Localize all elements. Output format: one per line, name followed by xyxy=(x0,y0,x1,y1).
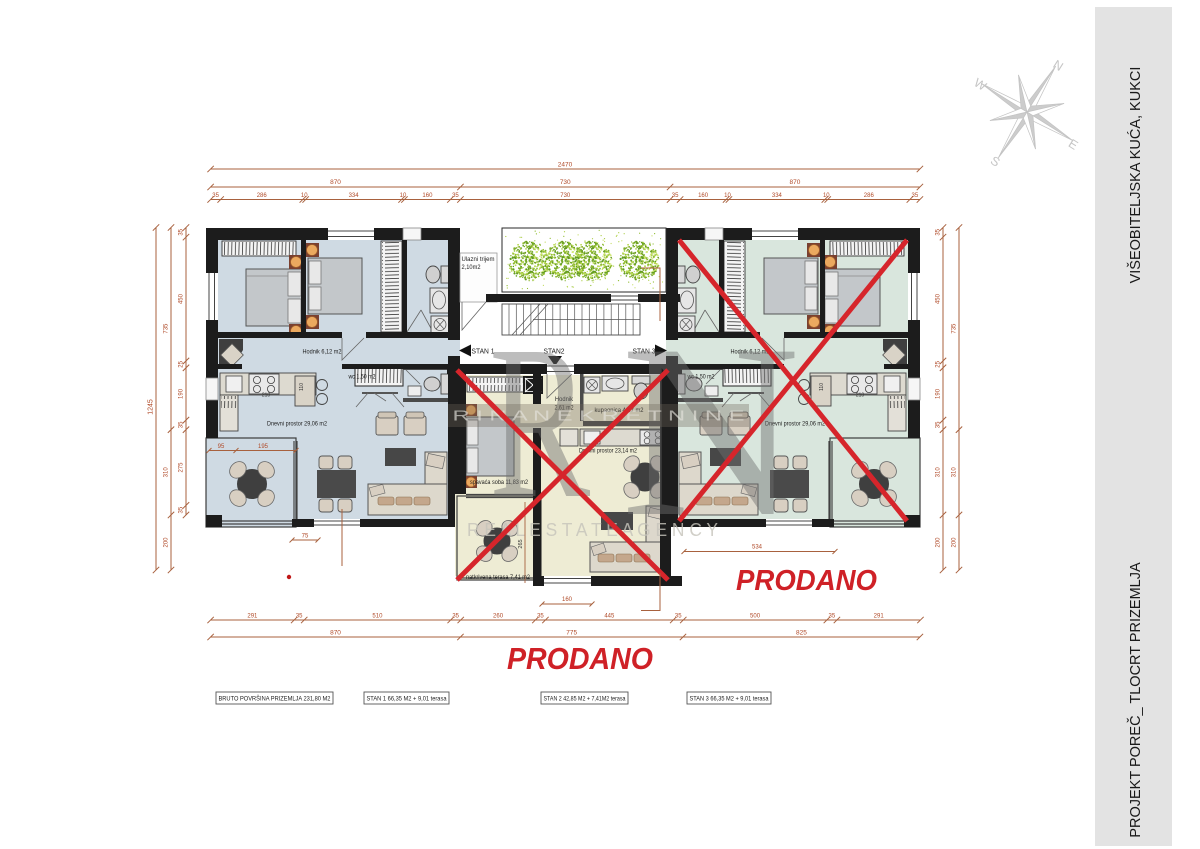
svg-text:Ulazni trijem: Ulazni trijem xyxy=(462,257,495,263)
svg-text:825: 825 xyxy=(796,630,807,637)
svg-text:450: 450 xyxy=(179,293,185,304)
svg-text:35: 35 xyxy=(452,614,459,620)
svg-text:190: 190 xyxy=(936,388,942,399)
svg-text:334: 334 xyxy=(772,193,783,199)
svg-text:110: 110 xyxy=(299,383,305,391)
svg-text:35: 35 xyxy=(179,421,185,428)
svg-text:35: 35 xyxy=(675,614,682,620)
svg-text:2470: 2470 xyxy=(558,162,573,169)
svg-text:870: 870 xyxy=(330,630,341,637)
svg-text:210: 210 xyxy=(856,393,865,399)
svg-text:291: 291 xyxy=(247,614,258,620)
svg-text:310: 310 xyxy=(936,467,942,478)
svg-text:730: 730 xyxy=(560,193,571,199)
svg-text:35: 35 xyxy=(936,421,942,428)
svg-text:310: 310 xyxy=(164,467,170,478)
svg-text:STAN 2 42,85 M2 + 7,41M2 teras: STAN 2 42,85 M2 + 7,41M2 terasa xyxy=(544,696,626,703)
svg-text:110: 110 xyxy=(819,383,825,391)
svg-text:160: 160 xyxy=(562,597,573,603)
svg-text:730: 730 xyxy=(560,179,571,186)
svg-text:310: 310 xyxy=(952,467,958,478)
svg-text:35: 35 xyxy=(452,193,459,199)
svg-text:25: 25 xyxy=(936,360,942,367)
svg-text:PRODANO: PRODANO xyxy=(736,565,877,597)
svg-text:35: 35 xyxy=(672,193,679,199)
svg-text:210: 210 xyxy=(262,393,271,399)
svg-text:160: 160 xyxy=(698,193,709,199)
svg-text:35: 35 xyxy=(179,228,185,235)
svg-text:190: 190 xyxy=(179,388,185,399)
svg-text:VIŠEOBITELJSKA KUĆA, KUKCI: VIŠEOBITELJSKA KUĆA, KUKCI xyxy=(1127,67,1144,284)
svg-text:Dnevni prostor 29,06 m2: Dnevni prostor 29,06 m2 xyxy=(267,422,328,428)
svg-text:775: 775 xyxy=(566,630,577,637)
svg-text:735: 735 xyxy=(952,323,958,334)
svg-text:wc 1,50 m2: wc 1,50 m2 xyxy=(348,375,376,381)
svg-text:STAN 3 66,35 M2 + 9,01 terasa: STAN 3 66,35 M2 + 9,01 terasa xyxy=(690,696,769,703)
svg-text:95: 95 xyxy=(218,444,225,450)
svg-text:200: 200 xyxy=(936,537,942,548)
svg-text:25: 25 xyxy=(179,360,185,367)
svg-text:STAN 1 66,35 M2 + 9,01 terasa: STAN 1 66,35 M2 + 9,01 terasa xyxy=(367,696,447,703)
svg-text:35: 35 xyxy=(936,228,942,235)
svg-text:BRUTO POVRŠINA PRIZEMLJA 231,: BRUTO POVRŠINA PRIZEMLJA 231,80 M2 xyxy=(219,694,331,703)
svg-text:260: 260 xyxy=(493,614,504,620)
svg-text:35: 35 xyxy=(179,506,185,513)
svg-text:500: 500 xyxy=(750,614,761,620)
svg-text:275: 275 xyxy=(179,462,185,473)
svg-text:35: 35 xyxy=(212,193,219,199)
svg-text:291: 291 xyxy=(874,614,885,620)
svg-text:870: 870 xyxy=(790,179,801,186)
svg-text:PRODANO: PRODANO xyxy=(507,641,653,676)
svg-text:natkrivena terasa 7,41 m2: natkrivena terasa 7,41 m2 xyxy=(466,575,531,581)
svg-text:445: 445 xyxy=(604,614,615,620)
svg-text:75: 75 xyxy=(302,534,309,540)
svg-text:195: 195 xyxy=(258,444,269,450)
svg-text:35: 35 xyxy=(912,193,919,199)
svg-text:510: 510 xyxy=(372,614,383,620)
svg-text:200: 200 xyxy=(164,537,170,548)
svg-text:35: 35 xyxy=(829,614,836,620)
svg-text:35: 35 xyxy=(537,614,544,620)
svg-text:Hodnik 6,12 m2: Hodnik 6,12 m2 xyxy=(303,350,343,356)
svg-text:534: 534 xyxy=(752,545,763,551)
svg-text:200: 200 xyxy=(952,537,958,548)
svg-text:35: 35 xyxy=(296,614,303,620)
svg-text:PROJEKT POREČ_ TLOCRT PRIZEMLJ: PROJEKT POREČ_ TLOCRT PRIZEMLJA xyxy=(1127,562,1144,838)
svg-text:286: 286 xyxy=(864,193,875,199)
svg-text:160: 160 xyxy=(422,193,433,199)
svg-text:450: 450 xyxy=(936,293,942,304)
svg-text:2,10m2: 2,10m2 xyxy=(462,265,482,271)
svg-text:286: 286 xyxy=(257,193,268,199)
svg-text:334: 334 xyxy=(349,193,360,199)
svg-text:735: 735 xyxy=(164,323,170,334)
svg-text:1245: 1245 xyxy=(148,399,155,415)
svg-text:870: 870 xyxy=(330,179,341,186)
